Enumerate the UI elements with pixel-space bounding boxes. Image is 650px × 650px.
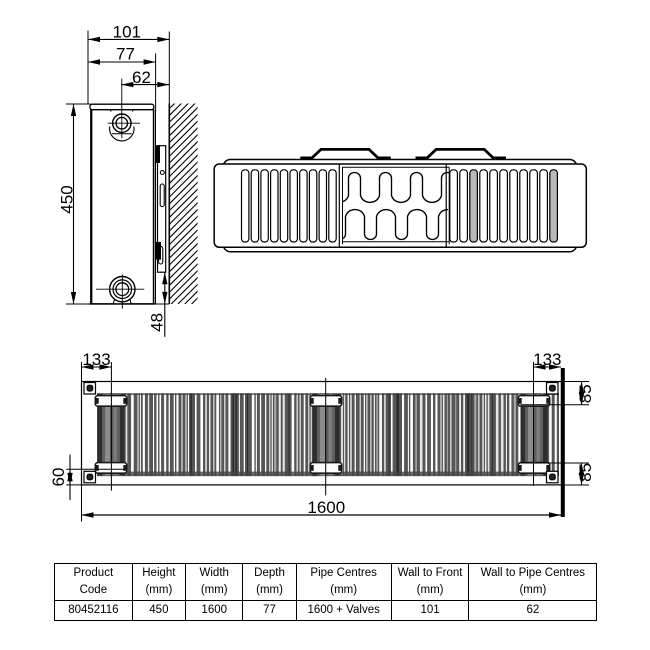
svg-text:133: 133 [82, 350, 110, 369]
svg-text:48: 48 [148, 313, 167, 332]
svg-text:85: 85 [576, 384, 595, 403]
svg-text:101: 101 [113, 22, 141, 41]
svg-text:1600: 1600 [307, 498, 345, 517]
svg-text:85: 85 [576, 463, 595, 482]
svg-text:62: 62 [132, 68, 151, 87]
svg-text:133: 133 [533, 350, 561, 369]
svg-text:77: 77 [116, 45, 135, 64]
svg-text:60: 60 [49, 468, 68, 487]
svg-text:450: 450 [57, 185, 76, 213]
